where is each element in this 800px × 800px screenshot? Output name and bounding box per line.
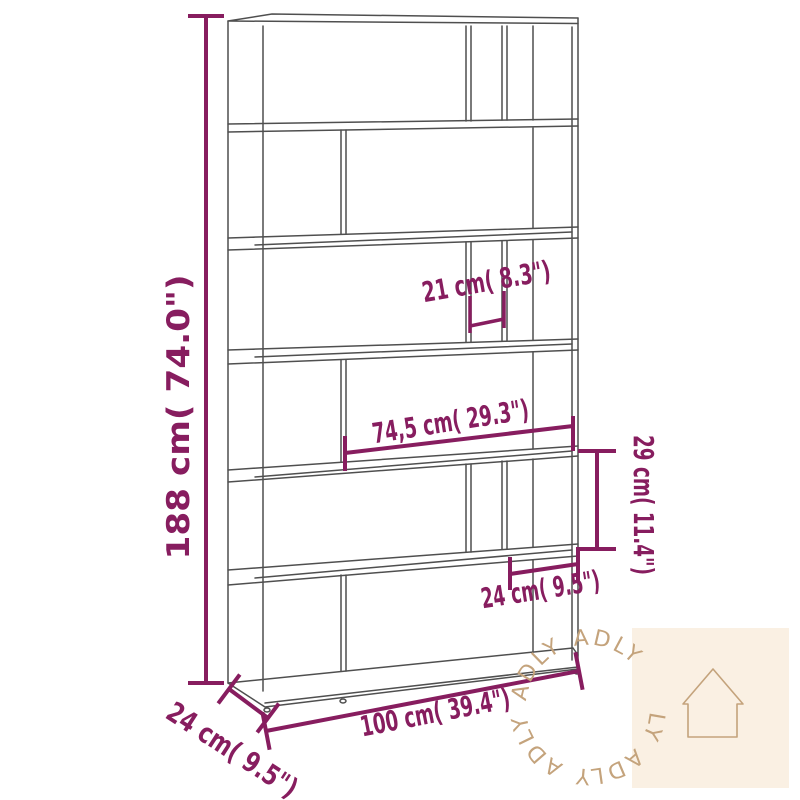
tier5-dividers [466, 459, 533, 552]
inner-height-label: 29 cm( 11.4") [627, 435, 660, 575]
watermark-brand-text: ADLY [507, 711, 566, 781]
width-label: 100 cm( 39.4") [357, 682, 513, 743]
dimension-annotations: 188 cm( 74.0") 21 cm( 8.3") 74,5 cm( 29.… [160, 16, 660, 800]
top-board [228, 14, 578, 24]
inner-height-dimension-line [578, 451, 616, 549]
dimension-height: 188 cm( 74.0") [161, 16, 224, 683]
product-image: 188 cm( 74.0") 21 cm( 8.3") 74,5 cm( 29.… [0, 0, 800, 800]
watermark-background [632, 628, 789, 788]
foot-left [264, 708, 270, 712]
shelf-board-1 [228, 119, 578, 132]
product-dimension-diagram: 188 cm( 74.0") 21 cm( 8.3") 74,5 cm( 29.… [0, 0, 800, 800]
depth-label: 24 cm( 9.5") [160, 695, 304, 800]
shelf-board-2 [228, 227, 578, 250]
watermark-brand-text: ADLY [507, 633, 566, 703]
tier1-dividers [466, 26, 533, 121]
dimension-depth: 24 cm( 9.5") [160, 675, 304, 800]
inner-right-label: 24 cm( 9.5") [479, 564, 603, 615]
dimension-inner-height: 29 cm( 11.4") [578, 435, 660, 575]
shelf-board-4 [228, 446, 578, 482]
height-label: 188 cm( 74.0") [161, 275, 197, 560]
depth-dimension-line [218, 675, 279, 733]
watermark-brand-text: ADLY [0, 0, 669, 747]
brand-watermark: ADLY ADLY ADLY ADLY ADLY [0, 0, 789, 788]
shelf-board-3 [228, 339, 578, 364]
tier2-dividers [341, 128, 533, 234]
foot-middle [340, 699, 346, 703]
